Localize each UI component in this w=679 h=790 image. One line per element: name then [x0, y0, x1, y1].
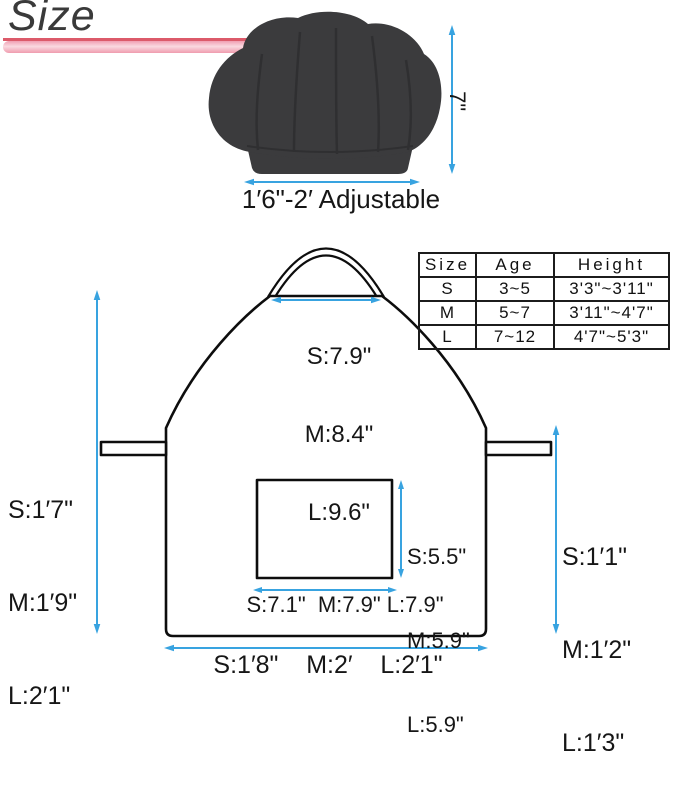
- cell-size-s: S: [419, 277, 476, 301]
- pocket-height-s: S:5.5": [407, 543, 470, 571]
- bottom-width-label: S:1′8" M:2′ L:2′1": [168, 650, 488, 680]
- pocket-height-l: L:5.9": [407, 711, 470, 739]
- apron-length-m: M:1′9": [8, 588, 77, 619]
- cell-size-l: L: [419, 325, 476, 349]
- col-header-height: Height: [554, 253, 669, 277]
- cell-height-l: 4'7"~5'3": [554, 325, 669, 349]
- apron-neck-strap: [268, 249, 384, 298]
- cell-height-m: 3'11"~4'7": [554, 301, 669, 325]
- table-row: L 7~12 4'7"~5'3": [419, 325, 669, 349]
- cell-size-m: M: [419, 301, 476, 325]
- cell-age-m: 5~7: [476, 301, 554, 325]
- cell-height-s: 3'3"~3'11": [554, 277, 669, 301]
- side-height-m: M:1′2": [562, 635, 631, 666]
- side-height-s: S:1′1": [562, 542, 631, 573]
- bib-width-labels: S:7.9" M:8.4" L:9.6": [283, 292, 395, 552]
- apron-right-tie: [486, 442, 551, 455]
- bib-width-m: M:8.4": [283, 422, 395, 448]
- pocket-width-label: S:7.1" M:7.9" L:7.9": [236, 592, 454, 618]
- size-table: Size Age Height S 3~5 3'3"~3'11" M 5~7 3…: [418, 252, 670, 350]
- apron-length-arrow: [94, 290, 101, 634]
- chef-hat-illustration: [209, 12, 442, 174]
- cell-age-l: 7~12: [476, 325, 554, 349]
- size-chart-page: { "title": "Size", "hat": { "height_labe…: [0, 0, 679, 678]
- apron-left-tie: [101, 442, 166, 455]
- col-header-age: Age: [476, 253, 554, 277]
- hat-height-label: 7": [444, 91, 470, 111]
- apron-length-s: S:1′7": [8, 495, 77, 526]
- apron-length-l: L:2′1": [8, 681, 77, 712]
- size-table-header-row: Size Age Height: [419, 253, 669, 277]
- col-header-size: Size: [419, 253, 476, 277]
- cell-age-s: 3~5: [476, 277, 554, 301]
- side-height-labels: S:1′1" M:1′2" L:1′3": [562, 480, 631, 790]
- pocket-height-labels: S:5.5" M:5.9" L:5.9": [407, 487, 470, 767]
- bib-width-l: L:9.6": [283, 500, 395, 526]
- table-row: S 3~5 3'3"~3'11": [419, 277, 669, 301]
- side-height-arrow: [553, 425, 560, 634]
- bib-width-s: S:7.9": [283, 344, 395, 370]
- table-row: M 5~7 3'11"~4'7": [419, 301, 669, 325]
- hat-width-label: 1′6"-2′ Adjustable: [222, 184, 460, 215]
- apron-length-labels: S:1′7" M:1′9" L:2′1": [8, 433, 77, 743]
- side-height-l: L:1′3": [562, 728, 631, 759]
